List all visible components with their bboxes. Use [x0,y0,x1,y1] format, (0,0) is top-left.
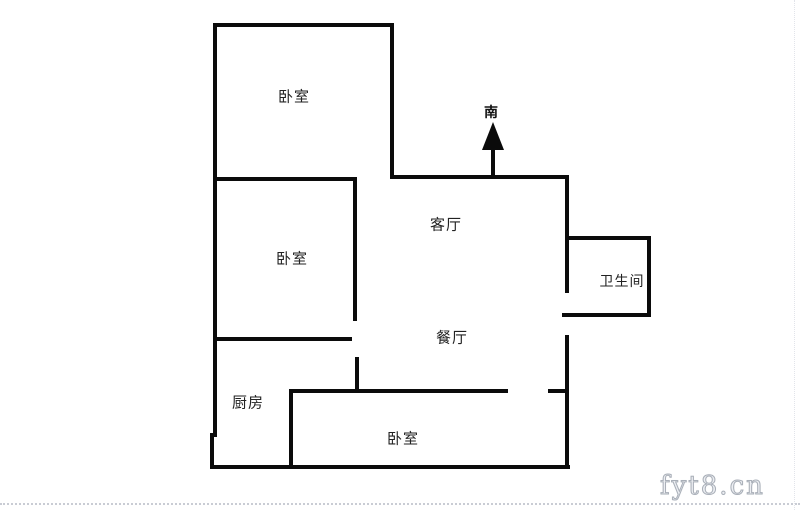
south-label: 南 [484,102,498,122]
bottom-edge-divider [0,503,800,505]
wall-top-bedroom-top-edge [213,23,394,27]
wall-bottom-bedroom-left [289,389,293,469]
wall-outer-bottom [210,465,570,469]
room-label-bathroom: 卫生间 [600,271,645,291]
room-label-bedroom-left: 卧室 [276,248,308,269]
wall-living-room-top [390,175,569,179]
wall-left-bedroom-top [213,177,357,181]
wall-bathroom-right [647,236,651,317]
wall-bottom-bedroom-top-left [289,389,508,393]
south-arrow-head-icon [482,122,504,150]
room-label-kitchen: 厨房 [232,392,264,413]
room-label-dining-room: 餐厅 [436,327,468,348]
wall-outer-right-upper [565,175,569,293]
floor-plan: 南 卧室 卧室 客厅 餐厅 卫生间 厨房 卧室 fyt8.cn [0,0,800,510]
wall-kitchen-partition [355,357,359,393]
room-label-living-room: 客厅 [430,214,462,235]
room-label-bedroom-top: 卧室 [278,86,310,107]
room-label-bedroom-bottom: 卧室 [387,428,419,449]
wall-outer-left [213,23,217,437]
wall-outer-right-lower [565,335,569,469]
wall-bathroom-bottom [562,313,651,317]
south-arrow-shaft [491,148,495,177]
wall-left-bedroom-bottom [213,337,352,341]
site-watermark: fyt8.cn [660,471,765,501]
wall-left-bedroom-right [353,177,357,321]
wall-bathroom-top [565,236,651,240]
right-edge-divider [794,0,795,510]
wall-bottom-bedroom-top-right [548,389,569,393]
wall-outer-left-lower-jog [210,433,214,469]
wall-top-bedroom-right-edge [390,23,394,179]
